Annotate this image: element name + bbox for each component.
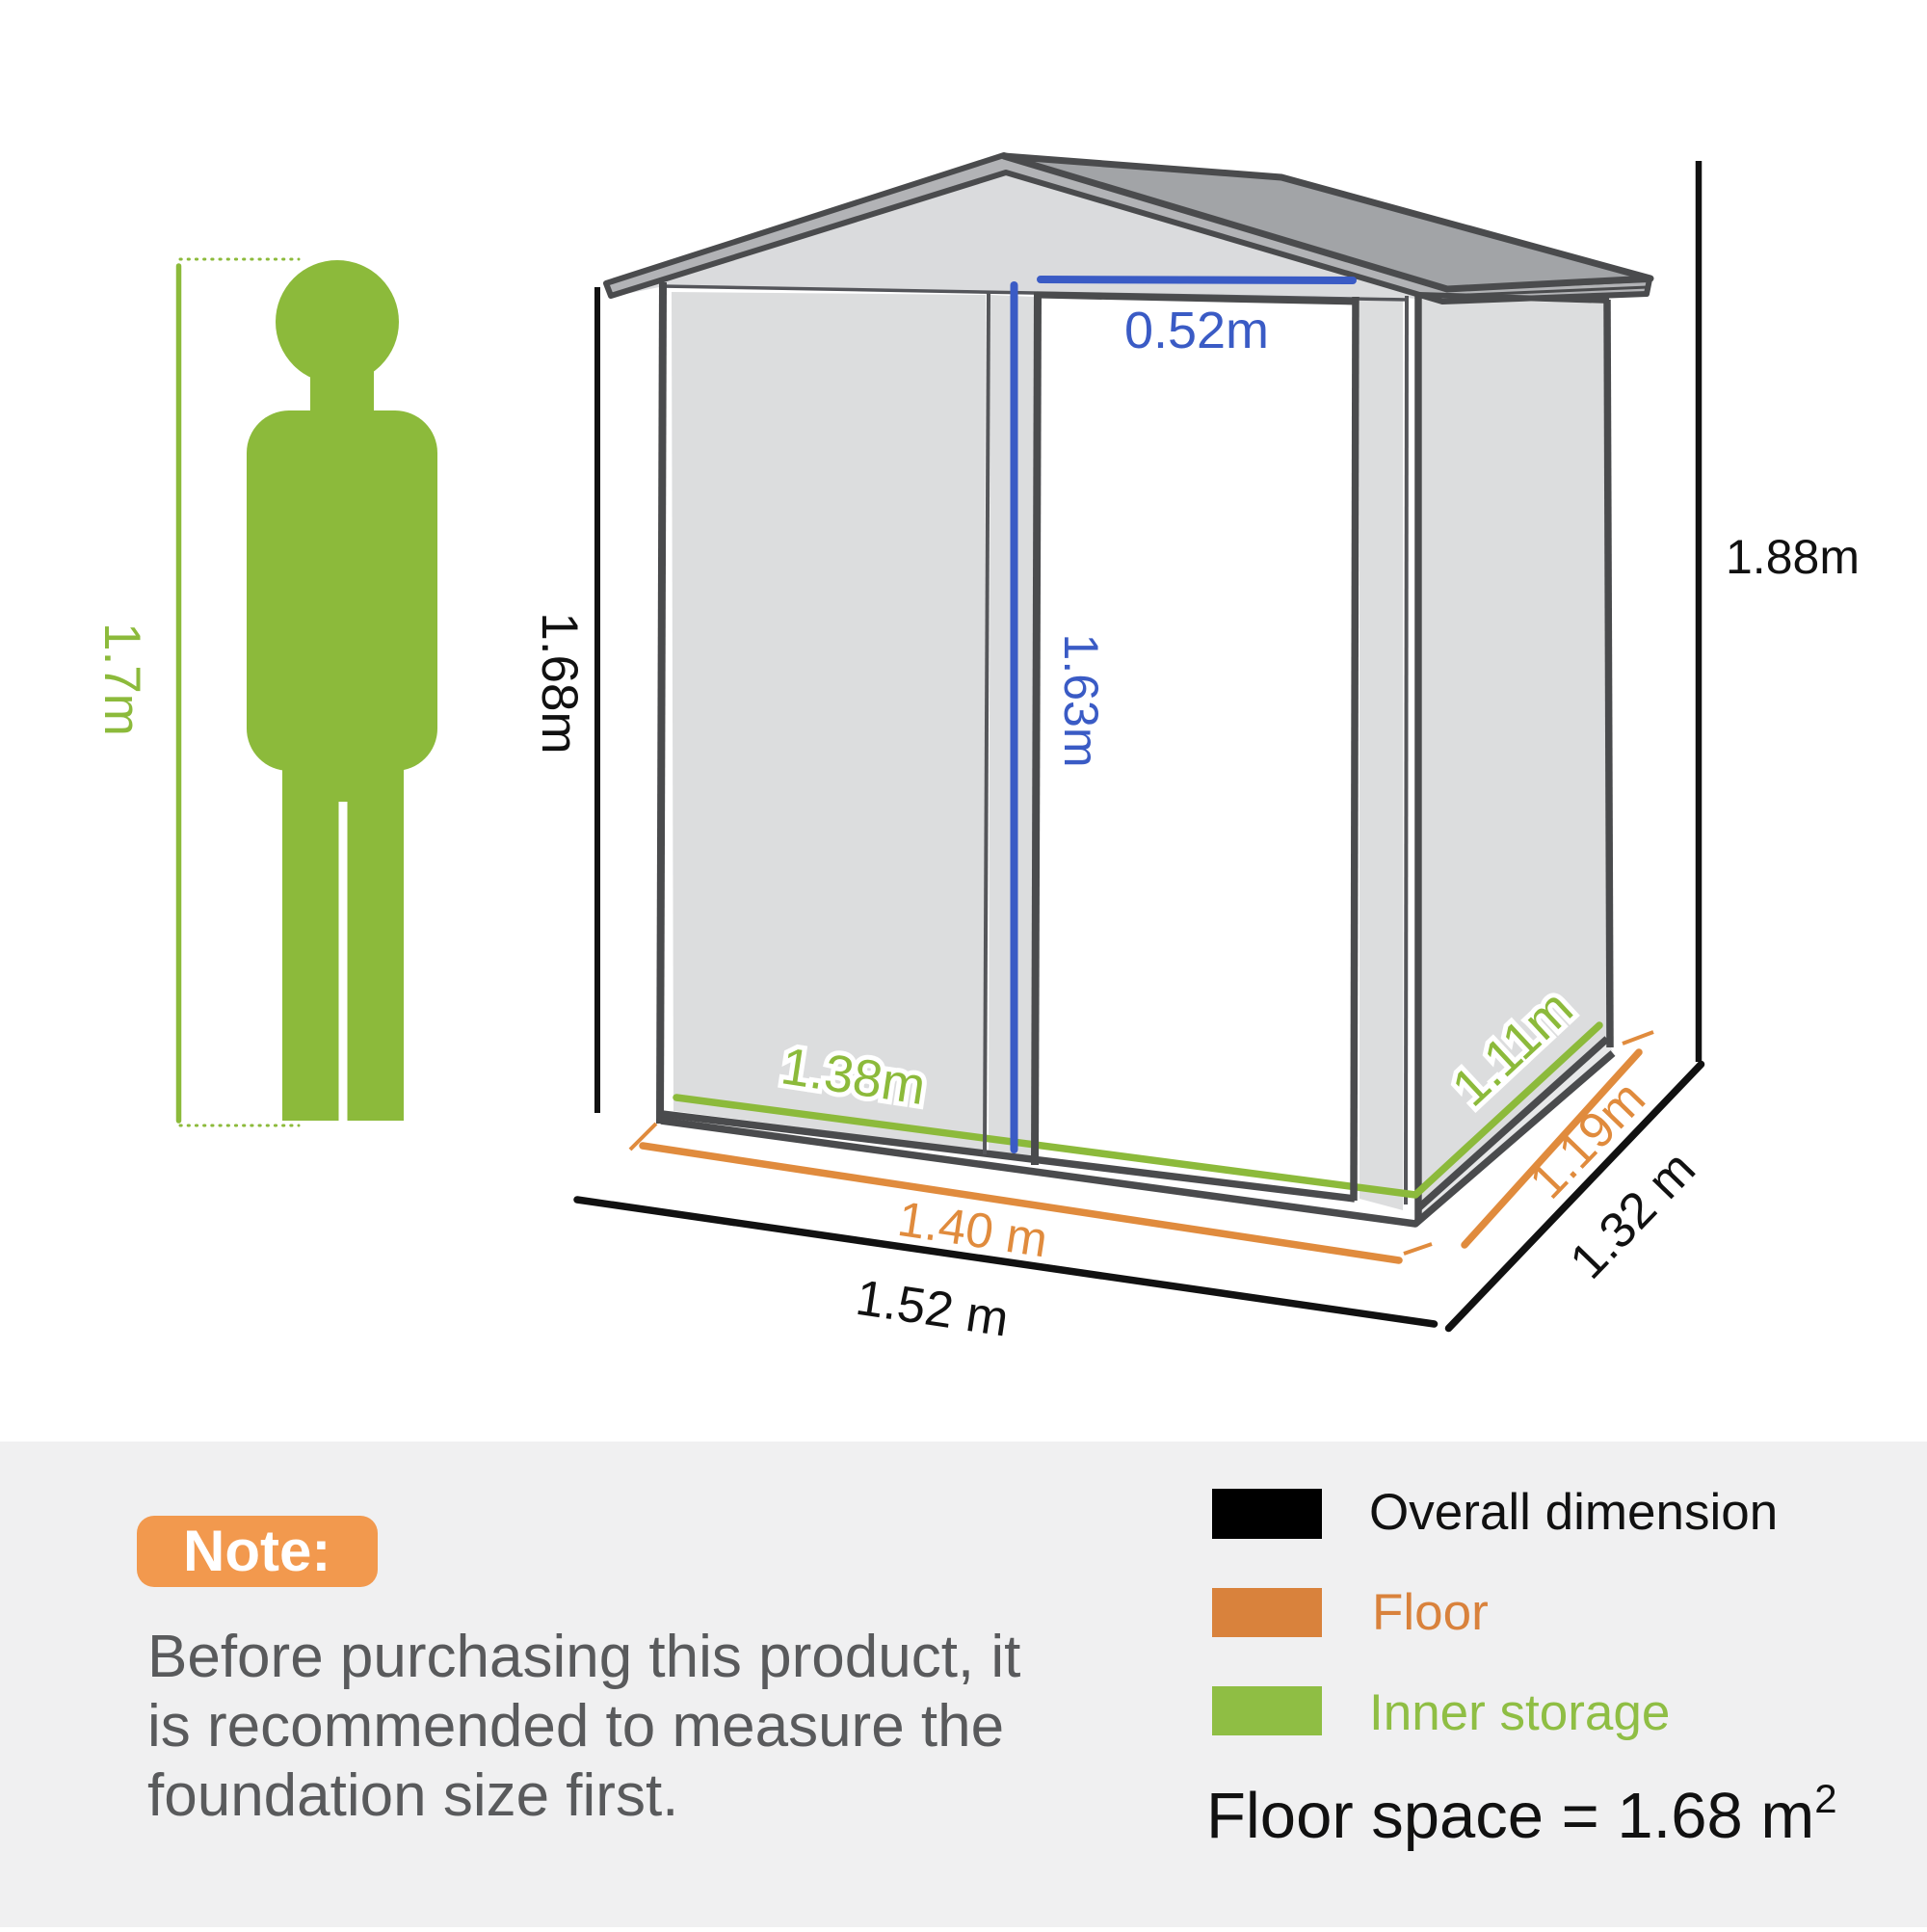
svg-text:1.63m: 1.63m: [1054, 634, 1108, 768]
svg-text:is recommended to measure the: is recommended to measure the: [147, 1693, 1004, 1760]
svg-text:1.7m: 1.7m: [93, 622, 150, 736]
svg-text:1.68m: 1.68m: [531, 612, 588, 754]
svg-text:1.88m: 1.88m: [1726, 530, 1860, 584]
svg-text:Floor space = 1.68 m2: Floor space = 1.68 m2: [1206, 1776, 1837, 1852]
svg-text:Note:: Note:: [183, 1519, 330, 1583]
svg-text:foundation size first.: foundation size first.: [147, 1762, 678, 1829]
svg-text:Before purchasing this product: Before purchasing this product, it: [147, 1624, 1020, 1690]
svg-text:Inner storage: Inner storage: [1369, 1684, 1670, 1741]
svg-text:Floor: Floor: [1372, 1584, 1489, 1641]
svg-text:0.52m: 0.52m: [1124, 302, 1269, 359]
svg-text:Overall dimension: Overall dimension: [1369, 1484, 1778, 1541]
